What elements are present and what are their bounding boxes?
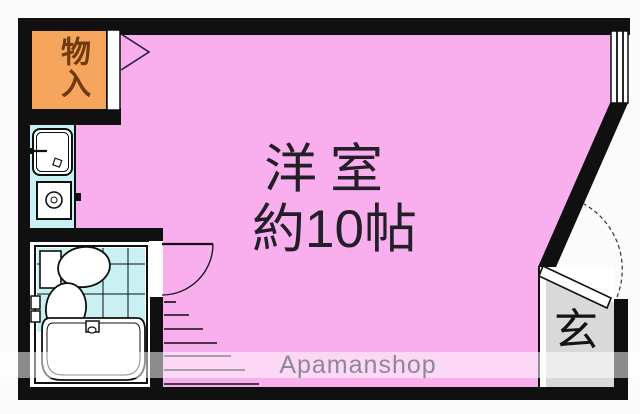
wall-right-top <box>610 18 630 32</box>
watermark-text: Apamanshop <box>38 352 640 378</box>
entrance-label: 玄 <box>554 308 598 354</box>
kitchen-room-divider <box>74 125 76 228</box>
floorplan-image: 物入 洋室 約10帖 玄 Apamanshop <box>0 0 640 414</box>
wall-below-kitchen <box>18 228 163 242</box>
sink-icon <box>28 129 72 175</box>
wall-left <box>18 18 30 400</box>
watermark-band: Apamanshop <box>0 352 640 378</box>
closet-door <box>107 30 120 110</box>
room-label-size: 約10帖 <box>252 200 452 260</box>
counter-knob <box>76 193 81 201</box>
closet-label: 物入 <box>50 36 90 112</box>
stove-icon <box>37 182 71 219</box>
room-label: 洋室 約10帖 <box>252 140 452 260</box>
window-icon <box>611 31 628 103</box>
room-label-name: 洋室 <box>252 140 452 200</box>
wall-bottom <box>18 387 628 400</box>
